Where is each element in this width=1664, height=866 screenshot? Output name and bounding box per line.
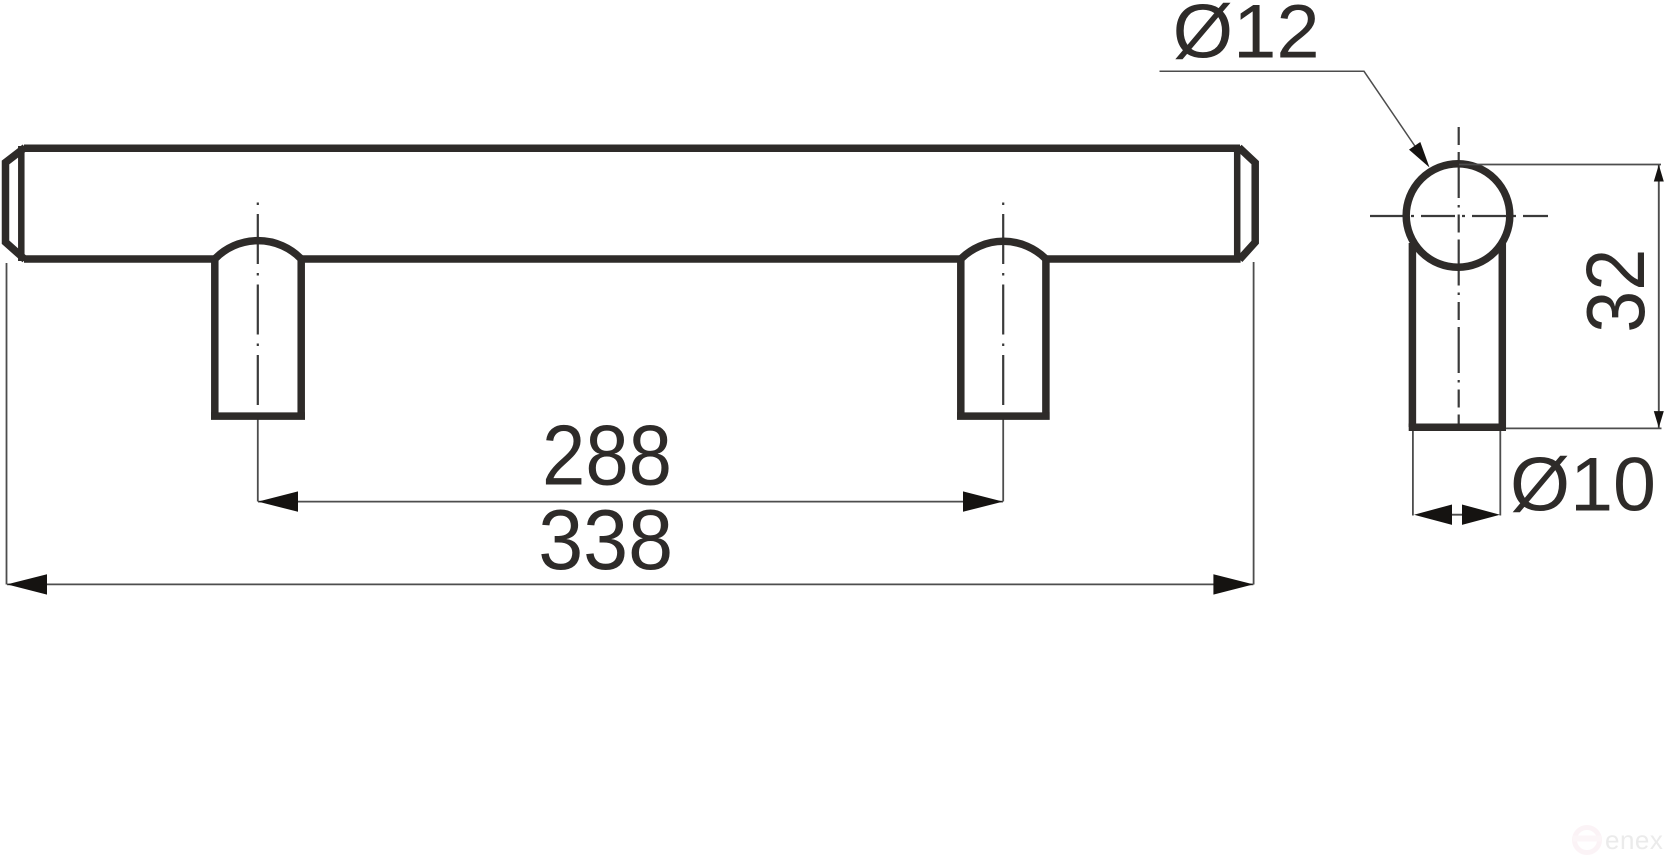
- svg-text:Ø10: Ø10: [1510, 442, 1656, 527]
- svg-text:338: 338: [538, 493, 673, 588]
- svg-text:enex: enex: [1605, 825, 1663, 855]
- svg-text:Ø12: Ø12: [1173, 0, 1320, 75]
- svg-text:32: 32: [1569, 249, 1662, 333]
- svg-text:288: 288: [542, 409, 672, 504]
